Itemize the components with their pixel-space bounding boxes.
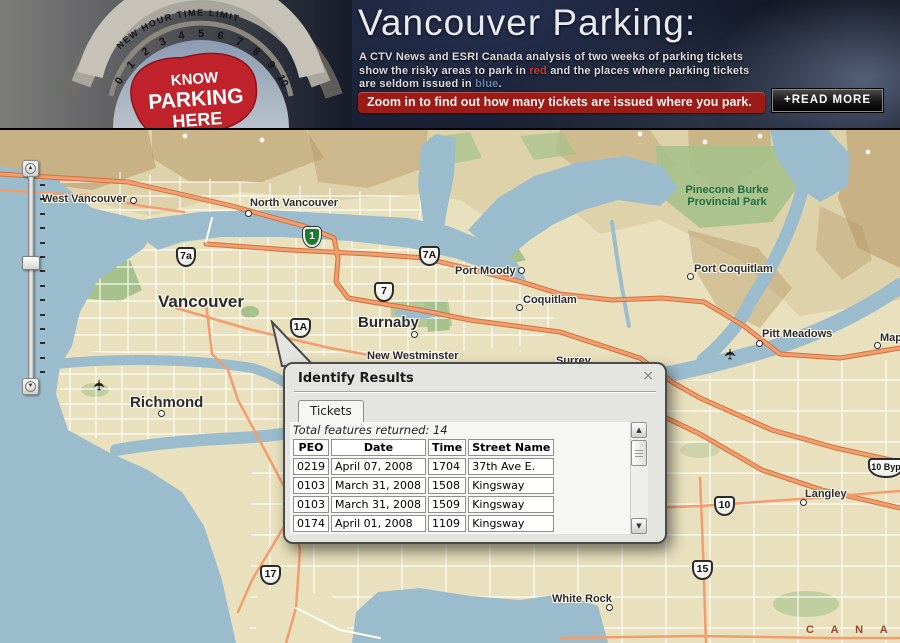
table-cell: 0219 <box>293 458 329 475</box>
city-label-new-westminster: New Westminster <box>367 350 459 362</box>
table-cell: March 31, 2008 <box>331 496 426 513</box>
city-marker <box>516 304 523 311</box>
airport-icon: ✈ <box>90 379 108 392</box>
city-label-white-rock: White Rock <box>552 593 612 605</box>
zoom-tick <box>40 314 45 316</box>
zoom-tick <box>40 328 45 330</box>
header-banner: NEW HOUR TIME LIMIT 012345678910 KNOW PA… <box>0 0 900 130</box>
highway-shield-17: 17 <box>260 565 281 585</box>
close-icon[interactable]: × <box>642 369 654 383</box>
city-marker <box>411 331 418 338</box>
city-marker <box>874 342 881 349</box>
highway-shield-7a: 7A <box>419 246 440 266</box>
zoom-track[interactable] <box>28 176 34 382</box>
zoom-tick <box>40 242 45 244</box>
city-label-langley: Langley <box>805 488 847 500</box>
city-marker <box>130 197 137 204</box>
zoom-tick <box>40 342 45 344</box>
table-cell: 37th Ave E. <box>468 458 554 475</box>
highway-shield-15: 15 <box>692 560 713 580</box>
highway-shield-7a: 7a <box>176 247 196 267</box>
zoom-out-button[interactable]: ▼ <box>22 378 39 395</box>
popup-content: Total features returned: 14 PEODateTimeS… <box>290 422 648 534</box>
desc-line3b: . <box>499 78 502 90</box>
tickets-table: PEODateTimeStreet Name 0219April 07, 200… <box>291 437 556 534</box>
highway-shield-1: 1 <box>303 227 321 247</box>
table-cell: April 01, 2008 <box>331 515 426 532</box>
table-cell: 0174 <box>293 515 329 532</box>
city-label-coquitlam: Coquitlam <box>523 294 577 306</box>
desc-line1: A CTV News and ESRI Canada analysis of t… <box>359 51 743 63</box>
zoom-tick <box>40 198 45 200</box>
column-header-time: Time <box>428 439 466 456</box>
city-label-vancouver: Vancouver <box>158 292 244 312</box>
page-title: Vancouver Parking: <box>358 2 696 44</box>
city-label-burnaby: Burnaby <box>358 314 419 331</box>
city-label-west-vancouver: West Vancouver <box>42 193 127 205</box>
zoom-slider: ▲ ▼ <box>22 160 52 412</box>
table-cell: 0103 <box>293 477 329 494</box>
popup-callout-pointer <box>270 320 320 368</box>
zoom-tick <box>40 285 45 287</box>
column-header-peo: PEO <box>293 439 329 456</box>
total-features-text: Total features returned: 14 <box>290 422 648 437</box>
zoom-tick <box>40 227 45 229</box>
zoom-hint-banner: Zoom in to find out how many tickets are… <box>358 92 765 113</box>
zoom-in-button[interactable]: ▲ <box>22 160 39 177</box>
city-label-port-moody: Port Moody <box>455 265 516 277</box>
city-marker <box>518 267 525 274</box>
table-cell: March 31, 2008 <box>331 477 426 494</box>
table-cell: Kingsway <box>468 496 554 513</box>
zoom-tick <box>40 256 45 258</box>
city-marker <box>158 410 165 417</box>
park-label-pinecone-burke: Pinecone BurkeProvincial Park <box>685 184 768 208</box>
scroll-thumb[interactable] <box>631 440 647 466</box>
desc-blue-word: blue <box>475 78 498 90</box>
table-row: 0219April 07, 2008170437th Ave E. <box>293 458 554 475</box>
desc-line2: show the risky areas to park in <box>359 65 529 77</box>
city-label-north-vancouver: North Vancouver <box>250 197 338 209</box>
table-cell: 1509 <box>428 496 466 513</box>
highway-shield-10: 10 <box>714 496 735 516</box>
scroll-down-button[interactable]: ▼ <box>631 518 647 534</box>
city-marker <box>606 604 613 611</box>
airport-icon: ✈ <box>721 348 739 361</box>
city-label-maple-ridge: Maple Ridge <box>880 332 900 344</box>
parking-meter-graphic: NEW HOUR TIME LIMIT 012345678910 KNOW PA… <box>0 0 352 128</box>
zoom-tick <box>40 299 45 301</box>
city-marker <box>245 210 252 217</box>
zoom-out-icon: ▼ <box>25 381 36 392</box>
table-cell: 1109 <box>428 515 466 532</box>
zoom-tick <box>40 213 45 215</box>
read-more-button[interactable]: +READ MORE <box>772 89 883 112</box>
zoom-tick-marks <box>40 184 45 385</box>
zoom-tick <box>40 184 45 186</box>
city-label-port-coquitlam: Port Coquitlam <box>694 263 773 275</box>
zoom-tick <box>40 357 45 359</box>
table-cell: 1508 <box>428 477 466 494</box>
logo-line-3: HERE <box>172 108 223 128</box>
table-row: 0103March 31, 20081508Kingsway <box>293 477 554 494</box>
column-header-date: Date <box>331 439 426 456</box>
table-cell: Kingsway <box>468 515 554 532</box>
desc-red-word: red <box>529 65 547 77</box>
city-label-richmond: Richmond <box>130 394 203 411</box>
table-cell: 0103 <box>293 496 329 513</box>
popup-separator <box>294 391 656 393</box>
popup-body: Identify Results × Tickets Total feature… <box>283 362 667 544</box>
zoom-in-icon: ▲ <box>25 163 36 174</box>
zoom-tick <box>40 371 45 373</box>
table-cell: April 07, 2008 <box>331 458 426 475</box>
header-description: A CTV News and ESRI Canada analysis of t… <box>359 51 749 92</box>
country-label-canada: C A N A D A <box>806 624 900 636</box>
city-marker <box>800 499 807 506</box>
city-marker <box>687 273 694 280</box>
app-window: NEW HOUR TIME LIMIT 012345678910 KNOW PA… <box>0 0 900 643</box>
city-marker <box>756 340 763 347</box>
table-cell: 1704 <box>428 458 466 475</box>
tab-tickets[interactable]: Tickets <box>298 400 364 422</box>
dial-number: 5 <box>198 28 204 40</box>
zoom-tick <box>40 270 45 272</box>
popup-scrollbar[interactable]: ▲ ▼ <box>630 422 648 534</box>
highway-shield-10-byp: 10 Byp <box>868 458 900 478</box>
column-header-street-name: Street Name <box>468 439 554 456</box>
city-label-pitt-meadows: Pitt Meadows <box>762 328 832 340</box>
highway-shield-7: 7 <box>374 282 394 302</box>
table-cell: Kingsway <box>468 477 554 494</box>
identify-results-popup: Identify Results × Tickets Total feature… <box>283 362 667 544</box>
table-row: 0103March 31, 20081509Kingsway <box>293 496 554 513</box>
zoom-thumb[interactable] <box>22 256 40 270</box>
scroll-up-button[interactable]: ▲ <box>631 422 647 438</box>
table-row: 0174April 01, 20081109Kingsway <box>293 515 554 532</box>
popup-title: Identify Results <box>298 371 414 386</box>
desc-line3: are seldom issued in <box>359 78 475 90</box>
desc-line2b: and the places where parking tickets <box>547 65 749 77</box>
